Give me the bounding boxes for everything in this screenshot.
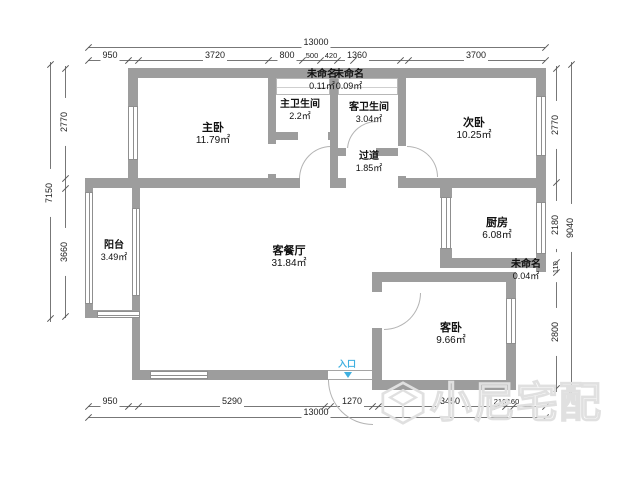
dim-bottom-seg-1: 5290 (220, 397, 244, 407)
room-name: 主卧 (173, 122, 253, 135)
room-area: 1.85㎡ (329, 163, 409, 174)
wall-guest-top (372, 272, 516, 282)
dim-top-seg-6: 3700 (464, 51, 488, 61)
dim-bottom-seg-0: 950 (100, 397, 119, 407)
window-balcony-south (97, 311, 140, 318)
room-name: 未命名 (498, 259, 554, 271)
dim-left-total: 7150 (45, 169, 55, 217)
dim-tick (542, 414, 549, 421)
door-arc-master-bedroom (299, 146, 331, 179)
dim-top-seg-4: 420 (325, 52, 338, 60)
room-name: 主卫生间 (268, 99, 332, 111)
dim-tick (542, 57, 549, 64)
door-arc-second-bedroom (407, 146, 438, 177)
wall-guest-bottom (372, 380, 516, 390)
dim-left-seg-1: 3660 (60, 228, 70, 276)
dim-top-seg-3: 500 (306, 52, 319, 60)
room-label-kitchen: 厨房 6.08㎡ (457, 217, 537, 242)
door-opening-master-bedroom (268, 144, 276, 174)
room-name: 客卧 (411, 322, 491, 335)
room-name: 未命名 (329, 69, 369, 81)
dim-tick (542, 403, 549, 410)
room-area: 31.84㎡ (249, 258, 329, 270)
room-label-master-bathroom: 主卫生间 2.2㎡ (268, 99, 332, 122)
room-name: 过道 (329, 151, 409, 163)
dim-right-seg-3: 2800 (551, 308, 561, 356)
room-label-second-bedroom: 次卧 10.25㎡ (434, 117, 514, 142)
room-area: 10.25㎡ (434, 130, 514, 142)
window-kitchen-east (536, 202, 546, 254)
floorplan-canvas: 主卧 11.79㎡ 主卫生间 2.2㎡ 未命名 0.11㎡ 未命名 0.09㎡ … (0, 0, 640, 478)
room-area: 9.66㎡ (411, 335, 491, 347)
wall-kitchen-slider-bottom (440, 248, 452, 258)
room-label-unnamed-2: 未命名 0.09㎡ (329, 69, 369, 92)
room-name: 厨房 (457, 217, 537, 230)
opening-vestibule-living (300, 178, 330, 188)
room-name: 阳台 (84, 240, 144, 252)
dim-bottom-seg-3: 3450 (438, 397, 462, 407)
room-area: 3.04㎡ (337, 114, 401, 125)
wall-guest-left (372, 272, 382, 390)
door-arc-guest-bath (347, 121, 377, 150)
room-label-guest-bedroom: 客卧 9.66㎡ (411, 322, 491, 347)
entrance-label: 入口 (338, 360, 356, 369)
room-name: 客餐厅 (249, 245, 329, 258)
sliding-door-kitchen (441, 197, 451, 249)
room-name: 客卫生间 (337, 102, 401, 114)
dim-bottom-seg-2: 1270 (340, 397, 364, 407)
window-living-south (150, 371, 208, 379)
dim-top-total: 13000 (301, 38, 330, 48)
opening-hallway-living (346, 178, 398, 188)
room-label-guest-bathroom: 客卫生间 3.04㎡ (337, 102, 401, 125)
dim-left-seg-0: 2770 (60, 98, 70, 146)
dim-top-seg-0: 950 (100, 51, 119, 61)
dim-top-seg-5: 1360 (345, 51, 369, 61)
dim-tick (62, 313, 69, 320)
door-opening-master-bath (298, 132, 328, 140)
dim-top-seg-1: 3720 (203, 51, 227, 61)
room-area: 11.79㎡ (173, 135, 253, 147)
room-label-master-bedroom: 主卧 11.79㎡ (173, 122, 253, 147)
dim-right-seg-0: 2770 (551, 101, 561, 149)
dim-tick (542, 44, 549, 51)
room-name: 次卧 (434, 117, 514, 130)
room-label-balcony: 阳台 3.49㎡ (84, 240, 144, 263)
door-opening-guest-bedroom (372, 292, 382, 328)
room-area: 2.2㎡ (268, 111, 332, 122)
dim-right-total: 9040 (566, 204, 576, 252)
room-label-living-dining: 客餐厅 31.84㎡ (249, 245, 329, 270)
room-area: 0.04㎡ (498, 271, 554, 282)
dim-right-seg-1: 2180 (551, 201, 561, 249)
window-second-bedroom-east (536, 96, 546, 156)
dim-top-seg-2: 800 (277, 51, 296, 61)
room-label-hallway: 过道 1.85㎡ (329, 151, 409, 174)
room-label-unnamed-3: 未命名 0.04㎡ (498, 259, 554, 282)
room-area: 0.09㎡ (329, 81, 369, 92)
room-area: 3.49㎡ (84, 252, 144, 263)
entrance-arrow-icon (344, 372, 352, 378)
window-master-bedroom-west (128, 106, 138, 160)
window-guest-bedroom-east (506, 298, 516, 344)
room-area: 6.08㎡ (457, 230, 537, 242)
